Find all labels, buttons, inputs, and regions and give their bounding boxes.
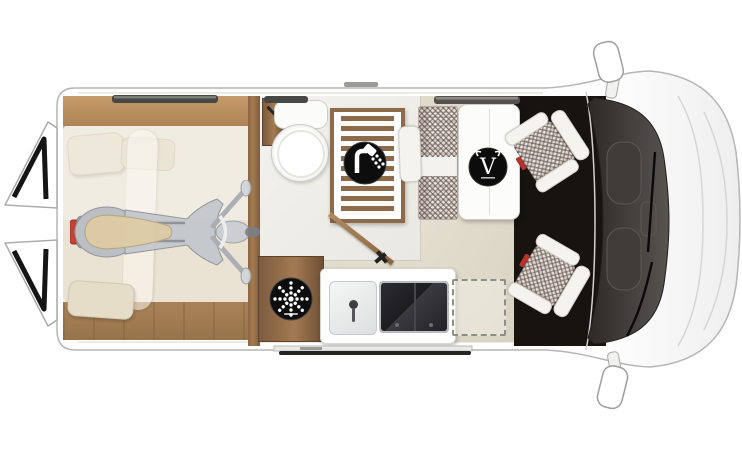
shower-icon [342,140,388,186]
brand-v-logo: V [467,146,509,188]
pillow [67,280,135,321]
bench-seat [418,106,458,220]
optional-extension-dashed [452,279,506,336]
brand-logo-letter: V [479,155,497,180]
hob-two-burner [379,281,449,333]
scooter [70,180,265,285]
rear-door-lower-open [5,240,57,326]
hob-glass-cover [381,283,447,331]
campervan-floorplan: V [0,0,742,451]
kitchen-unit [320,268,456,344]
rear-door-upper-open [5,122,57,208]
bench-armrest [398,126,422,183]
vent-fan-icon [268,276,314,322]
toilet-bowl [271,124,329,182]
sink [329,281,377,335]
